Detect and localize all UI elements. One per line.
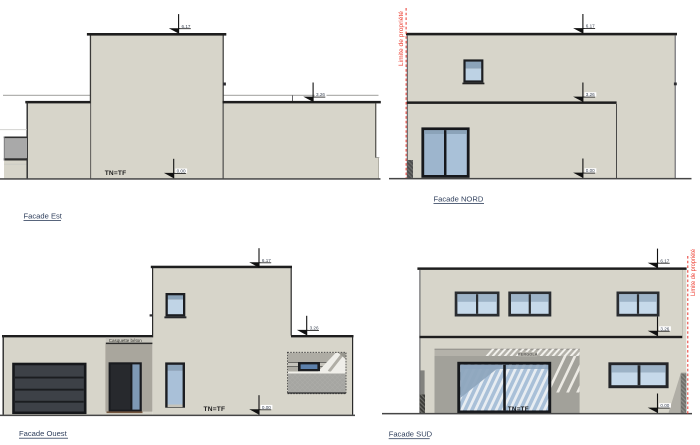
- svg-text:0.00: 0.00: [660, 403, 669, 408]
- svg-text:Limite de propriété: Limite de propriété: [398, 10, 405, 66]
- svg-text:0.00: 0.00: [262, 405, 271, 410]
- svg-text:6.17: 6.17: [262, 258, 271, 263]
- svg-text:TN=TF: TN=TF: [204, 406, 226, 413]
- svg-text:Facade SUD: Facade SUD: [389, 430, 433, 439]
- svg-text:Facade NORD: Facade NORD: [434, 195, 484, 204]
- svg-text:TN=TF: TN=TF: [105, 170, 127, 177]
- svg-text:0.00: 0.00: [586, 168, 595, 173]
- svg-text:6.17: 6.17: [586, 24, 595, 29]
- svg-text:PERGOLA: PERGOLA: [518, 353, 538, 357]
- svg-text:3.26: 3.26: [586, 92, 595, 97]
- svg-text:6.17: 6.17: [660, 258, 669, 263]
- svg-text:TN=TF: TN=TF: [508, 406, 529, 413]
- svg-text:Facade Ouest: Facade Ouest: [19, 429, 68, 438]
- svg-text:3.26: 3.26: [310, 326, 319, 331]
- svg-text:Casquette béton: Casquette béton: [109, 338, 143, 343]
- svg-text:6.17: 6.17: [182, 24, 191, 29]
- svg-text:3.26: 3.26: [660, 326, 669, 331]
- svg-text:Limite de propriété: Limite de propriété: [690, 248, 697, 296]
- svg-text:Facade Est: Facade Est: [24, 212, 63, 221]
- svg-text:0.00: 0.00: [177, 169, 186, 174]
- svg-text:3.26: 3.26: [316, 92, 325, 97]
